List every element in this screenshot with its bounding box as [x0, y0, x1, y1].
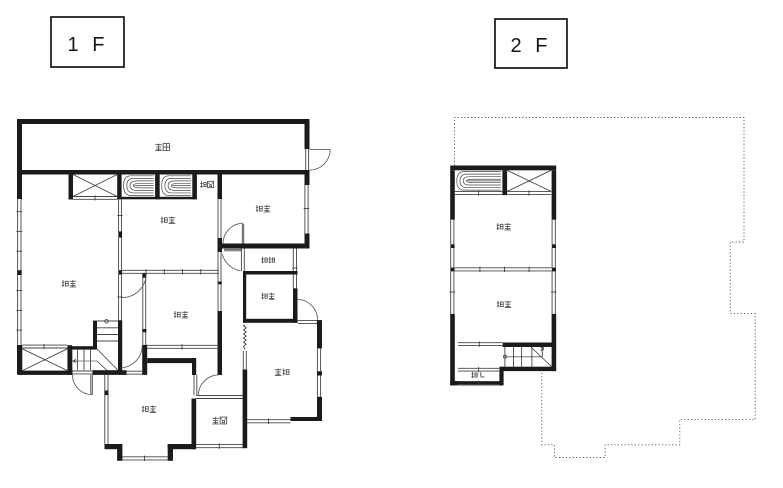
svg-text:2 F: 2 F [511, 35, 552, 57]
svg-text:1 F: 1 F [68, 34, 109, 56]
